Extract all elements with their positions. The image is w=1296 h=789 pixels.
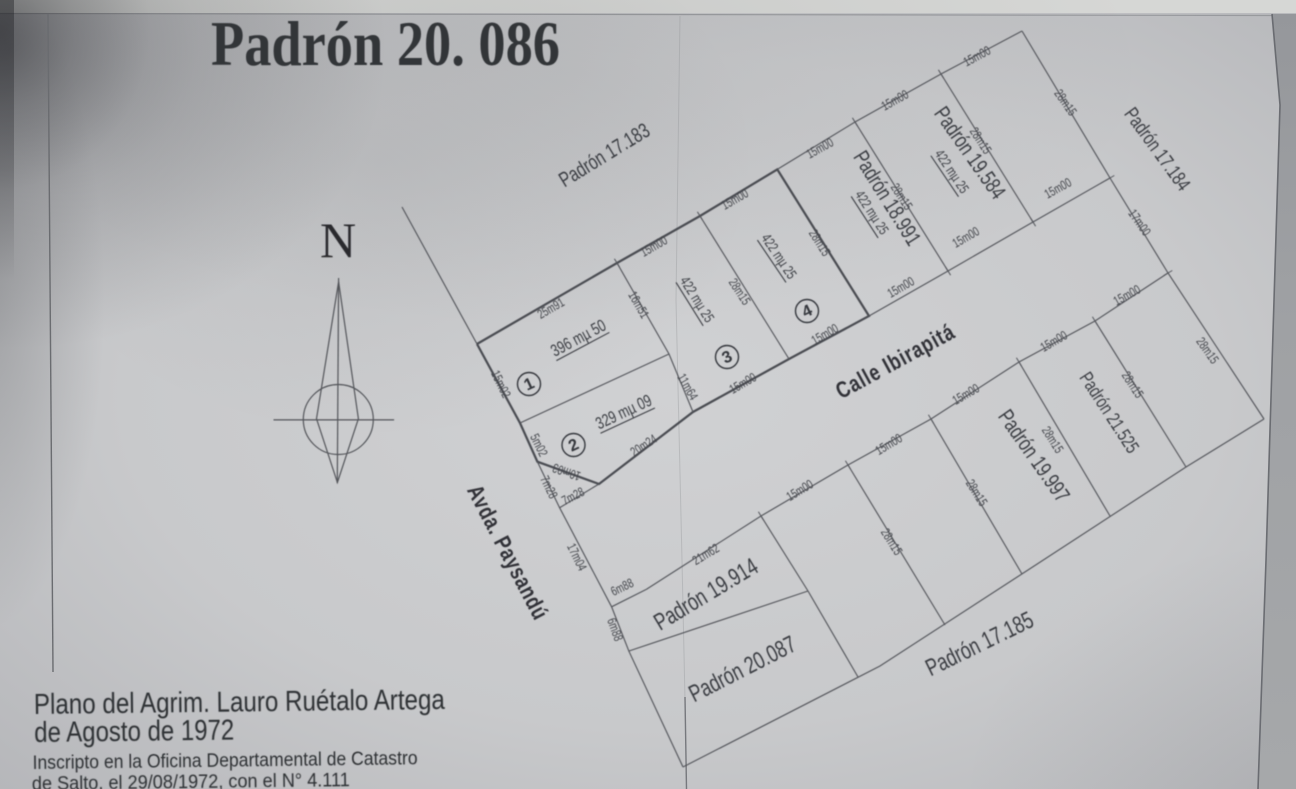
svg-text:Padrón 20. 086: Padrón 20. 086 <box>211 9 560 79</box>
svg-text:de Agosto de 1972: de Agosto de 1972 <box>34 715 234 749</box>
svg-text:N: N <box>320 212 356 268</box>
svg-text:de Salto, el 29/08/1972, con e: de Salto, el 29/08/1972, con el N° 4.111 <box>32 769 350 789</box>
